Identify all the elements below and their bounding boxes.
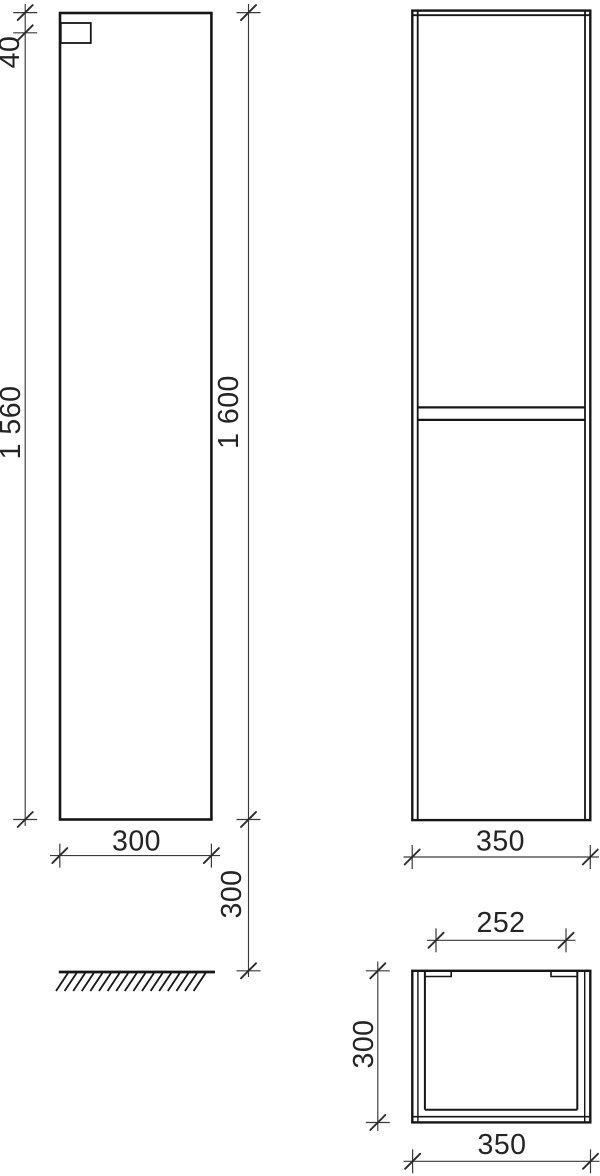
left-hinge-tab: [425, 972, 451, 977]
dim-label-top-width: 350: [477, 1129, 526, 1161]
wall-mount-bracket: [61, 23, 91, 43]
right-hinge-tab: [551, 972, 577, 977]
drawing-canvas: 40 1 560 1 600 300 300: [0, 0, 600, 1176]
top-view: [412, 971, 590, 1123]
dim-opening-width: 252: [427, 907, 576, 952]
side-view: [60, 13, 211, 820]
dim-top-depth: 300: [348, 962, 390, 1132]
dim-front-width: 350: [404, 826, 600, 870]
floor-hatch: [56, 973, 206, 991]
front-view-outline: [412, 11, 590, 821]
front-view: [412, 11, 590, 821]
dim-label-floor-clearance: 300: [216, 869, 248, 918]
dim-label-side-depth: 300: [112, 826, 161, 858]
dim-side-depth: 300: [50, 826, 220, 868]
dim-label-total-height: 1 600: [213, 375, 245, 449]
side-view-outline: [60, 13, 211, 820]
dim-left-vertical: 40 1 560: [0, 4, 37, 827]
floor: [56, 972, 215, 991]
top-view-outline: [412, 971, 590, 1123]
dim-label-opening-width: 252: [476, 907, 525, 939]
dim-label-top-offset: 40: [0, 36, 26, 69]
dim-right-vertical: 1 600 300: [213, 4, 261, 978]
dim-label-top-depth: 300: [348, 1019, 380, 1068]
technical-drawing: 40 1 560 1 600 300 300: [0, 0, 600, 1176]
dim-label-body-height: 1 560: [0, 386, 27, 460]
dim-top-width: 350: [404, 1129, 600, 1173]
dim-label-front-width: 350: [476, 826, 525, 858]
